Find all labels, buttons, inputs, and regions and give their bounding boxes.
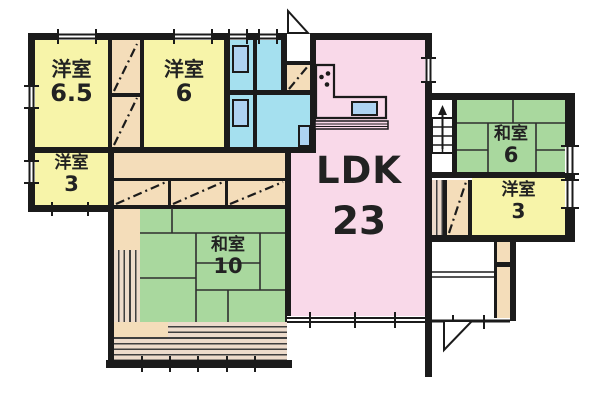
wall-segment bbox=[565, 93, 575, 242]
room-name: 洋室 bbox=[144, 58, 224, 80]
toilet-room bbox=[230, 40, 253, 90]
wall-segment bbox=[430, 235, 575, 242]
wall-segment bbox=[427, 172, 575, 178]
room-name: 和室 bbox=[457, 125, 565, 144]
floor-plan: 洋室 6.5 洋室 6 洋室 3 和室 10 LDK 23 和室 6 洋室 3 bbox=[0, 0, 600, 400]
toilet-room bbox=[230, 95, 253, 147]
wall-segment bbox=[253, 40, 257, 150]
wall-segment bbox=[108, 153, 114, 368]
wall-segment bbox=[494, 242, 497, 318]
room-size: 6 bbox=[144, 80, 224, 107]
room-name: 洋室 bbox=[35, 58, 108, 80]
wall-segment bbox=[28, 33, 35, 212]
wall-segment bbox=[310, 33, 432, 40]
room-label-western-3-left: 洋室 3 bbox=[35, 154, 108, 197]
room-size: 6 bbox=[457, 144, 565, 168]
closet bbox=[447, 180, 468, 235]
room-name: 和室 bbox=[196, 236, 260, 255]
wall-segment bbox=[114, 205, 285, 209]
wall-segment bbox=[497, 262, 510, 267]
wall-segment bbox=[427, 93, 575, 100]
room-label-japanese-6: 和室 6 bbox=[457, 125, 565, 168]
closet bbox=[287, 65, 310, 90]
veranda-right bbox=[432, 180, 443, 235]
room-label-western-6-5: 洋室 6.5 bbox=[35, 58, 108, 107]
wall-segment bbox=[168, 181, 171, 205]
wall-segment bbox=[112, 93, 140, 97]
wall-segment bbox=[225, 181, 228, 205]
room-size: 6.5 bbox=[35, 80, 108, 107]
room-label-japanese-10: 和室 10 bbox=[196, 236, 260, 279]
room-size: 10 bbox=[196, 255, 260, 279]
wall-segment bbox=[28, 205, 114, 212]
closet bbox=[171, 181, 225, 205]
wall-segment bbox=[28, 33, 287, 40]
genkan-side bbox=[497, 242, 510, 262]
genkan-side bbox=[497, 267, 510, 318]
back-door-swing bbox=[288, 11, 308, 33]
room-label-western-6: 洋室 6 bbox=[144, 58, 224, 107]
wall-segment bbox=[425, 33, 432, 377]
wall-segment bbox=[443, 180, 447, 235]
washroom bbox=[257, 95, 310, 147]
wall-segment bbox=[114, 178, 285, 181]
wall-segment bbox=[106, 360, 292, 368]
veranda-corner bbox=[114, 208, 140, 250]
room-size: 3 bbox=[35, 173, 108, 197]
veranda-left bbox=[114, 250, 140, 322]
room-name: LDK bbox=[293, 150, 425, 191]
room-label-ldk: LDK 23 bbox=[293, 150, 425, 244]
ldk bbox=[316, 40, 425, 147]
closet bbox=[112, 97, 140, 147]
closet bbox=[114, 181, 168, 205]
wall-segment bbox=[287, 61, 310, 65]
bathroom bbox=[257, 40, 281, 90]
room-name: 洋室 bbox=[35, 154, 108, 173]
wall-segment bbox=[285, 153, 291, 322]
corridor bbox=[114, 153, 285, 178]
room-size: 3 bbox=[472, 200, 565, 222]
wall-segment bbox=[228, 90, 313, 95]
wall-segment bbox=[510, 242, 516, 321]
hallway bbox=[287, 40, 310, 61]
closet bbox=[228, 181, 285, 205]
room-size: 23 bbox=[293, 200, 425, 244]
closet bbox=[112, 40, 140, 93]
stair-hall bbox=[432, 100, 452, 118]
room-label-western-3-right: 洋室 3 bbox=[472, 181, 565, 222]
stair-hall bbox=[432, 153, 452, 172]
veranda-corner bbox=[114, 322, 168, 337]
room-name: 洋室 bbox=[472, 181, 565, 200]
